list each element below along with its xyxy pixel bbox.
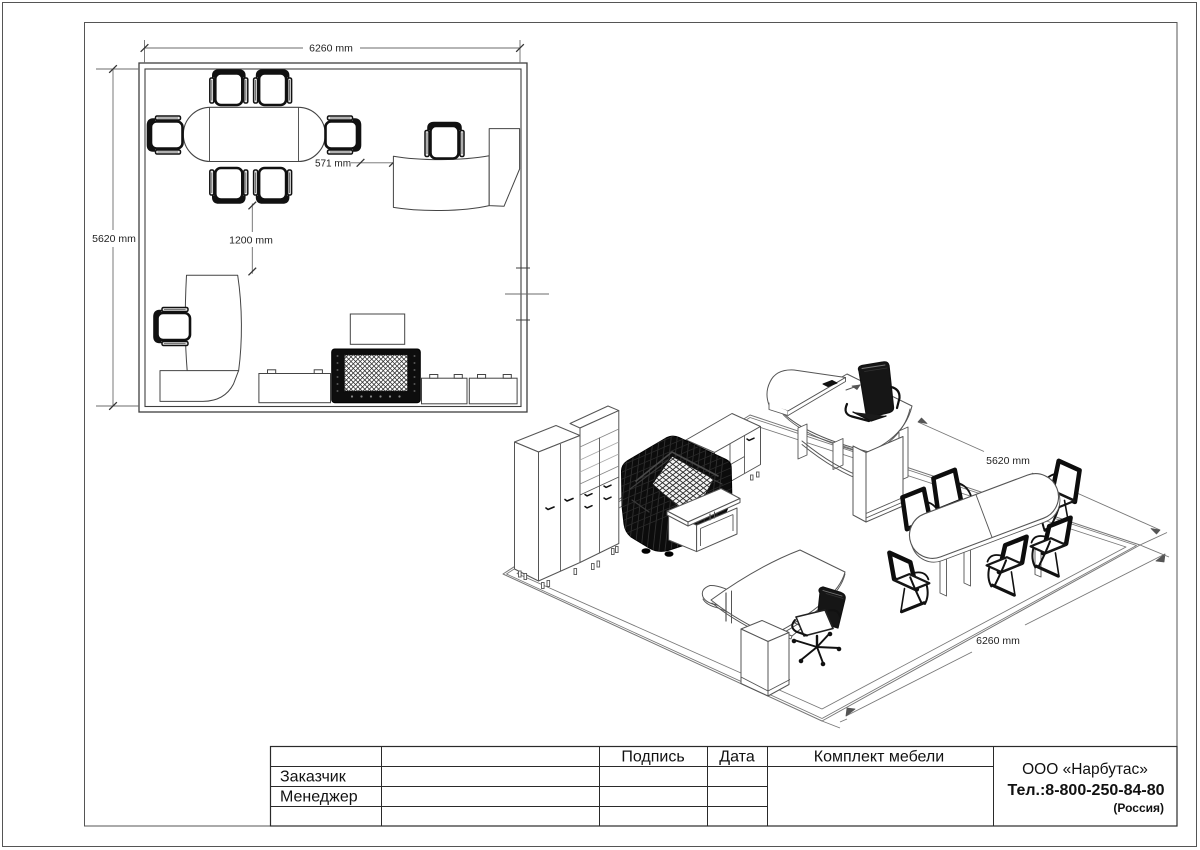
- svg-text:5620 mm: 5620 mm: [986, 455, 1030, 467]
- svg-text:Тел.:8-800-250-84-80: Тел.:8-800-250-84-80: [1007, 782, 1164, 799]
- svg-text:Комплект мебели: Комплект мебели: [814, 749, 944, 766]
- svg-text:Подпись: Подпись: [621, 749, 684, 766]
- svg-text:1200 mm: 1200 mm: [229, 235, 273, 247]
- svg-text:6260 mm: 6260 mm: [976, 635, 1020, 647]
- svg-text:(Россия): (Россия): [1113, 801, 1164, 815]
- svg-text:5620 mm: 5620 mm: [92, 233, 136, 245]
- svg-text:Заказчик: Заказчик: [280, 769, 347, 786]
- svg-text:571 mm: 571 mm: [315, 159, 351, 170]
- svg-text:6260 mm: 6260 mm: [309, 43, 353, 55]
- svg-text:Дата: Дата: [719, 749, 755, 766]
- svg-text:ООО «Нарбутас»: ООО «Нарбутас»: [1022, 761, 1148, 778]
- svg-text:Менеджер: Менеджер: [280, 789, 358, 806]
